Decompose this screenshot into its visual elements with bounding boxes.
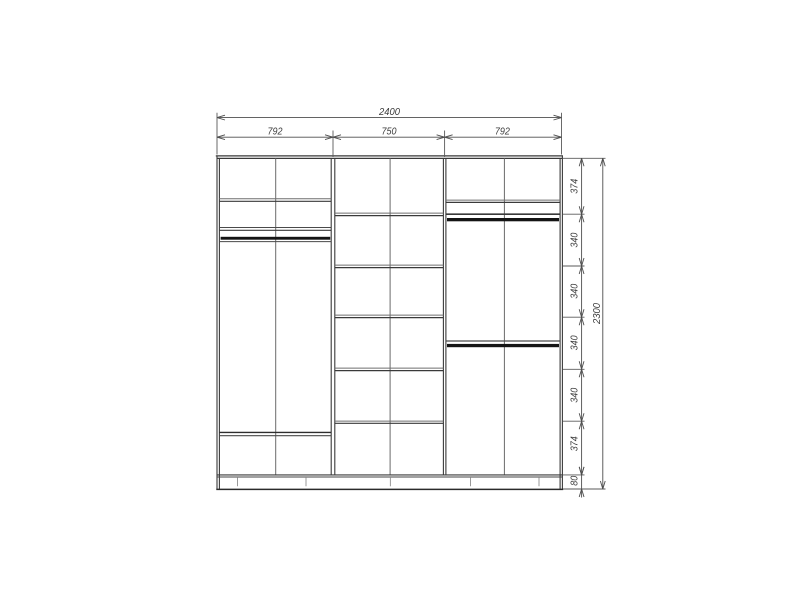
- svg-text:340: 340: [570, 283, 581, 298]
- svg-text:340: 340: [570, 387, 581, 402]
- svg-text:750: 750: [382, 126, 397, 137]
- svg-text:340: 340: [570, 335, 581, 350]
- svg-text:374: 374: [570, 436, 581, 451]
- svg-text:792: 792: [268, 126, 283, 137]
- svg-text:2400: 2400: [378, 107, 400, 118]
- svg-text:80: 80: [570, 475, 581, 485]
- svg-text:340: 340: [570, 232, 581, 247]
- svg-text:2300: 2300: [592, 303, 603, 325]
- svg-text:792: 792: [495, 126, 510, 137]
- svg-text:374: 374: [570, 178, 581, 193]
